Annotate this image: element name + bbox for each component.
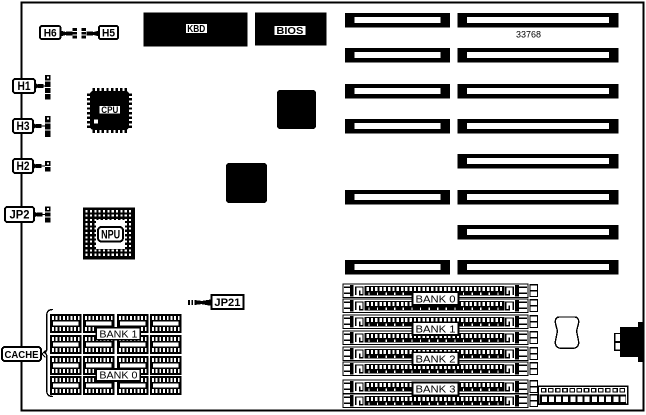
svg-text:H1: H1: [18, 81, 32, 93]
svg-text:H2: H2: [17, 161, 30, 173]
svg-text:BANK 1: BANK 1: [99, 329, 137, 340]
svg-text:CPU: CPU: [101, 105, 118, 115]
svg-text:BANK 3: BANK 3: [416, 385, 456, 396]
svg-text:33768: 33768: [516, 30, 541, 40]
svg-text:H5: H5: [102, 28, 115, 40]
svg-text:H6: H6: [44, 28, 57, 40]
svg-text:H3: H3: [17, 121, 30, 133]
svg-text:JP2: JP2: [10, 210, 30, 222]
svg-text:NPU: NPU: [101, 230, 120, 242]
svg-text:CACHE: CACHE: [5, 349, 39, 361]
svg-text:KBD: KBD: [187, 24, 205, 35]
svg-text:BANK 2: BANK 2: [416, 354, 456, 365]
svg-text:BANK 1: BANK 1: [416, 324, 456, 335]
svg-text:BANK 0: BANK 0: [99, 371, 137, 382]
svg-text:JP21: JP21: [214, 297, 240, 309]
svg-text:BIOS: BIOS: [276, 26, 303, 37]
svg-text:BANK 0: BANK 0: [416, 294, 456, 305]
